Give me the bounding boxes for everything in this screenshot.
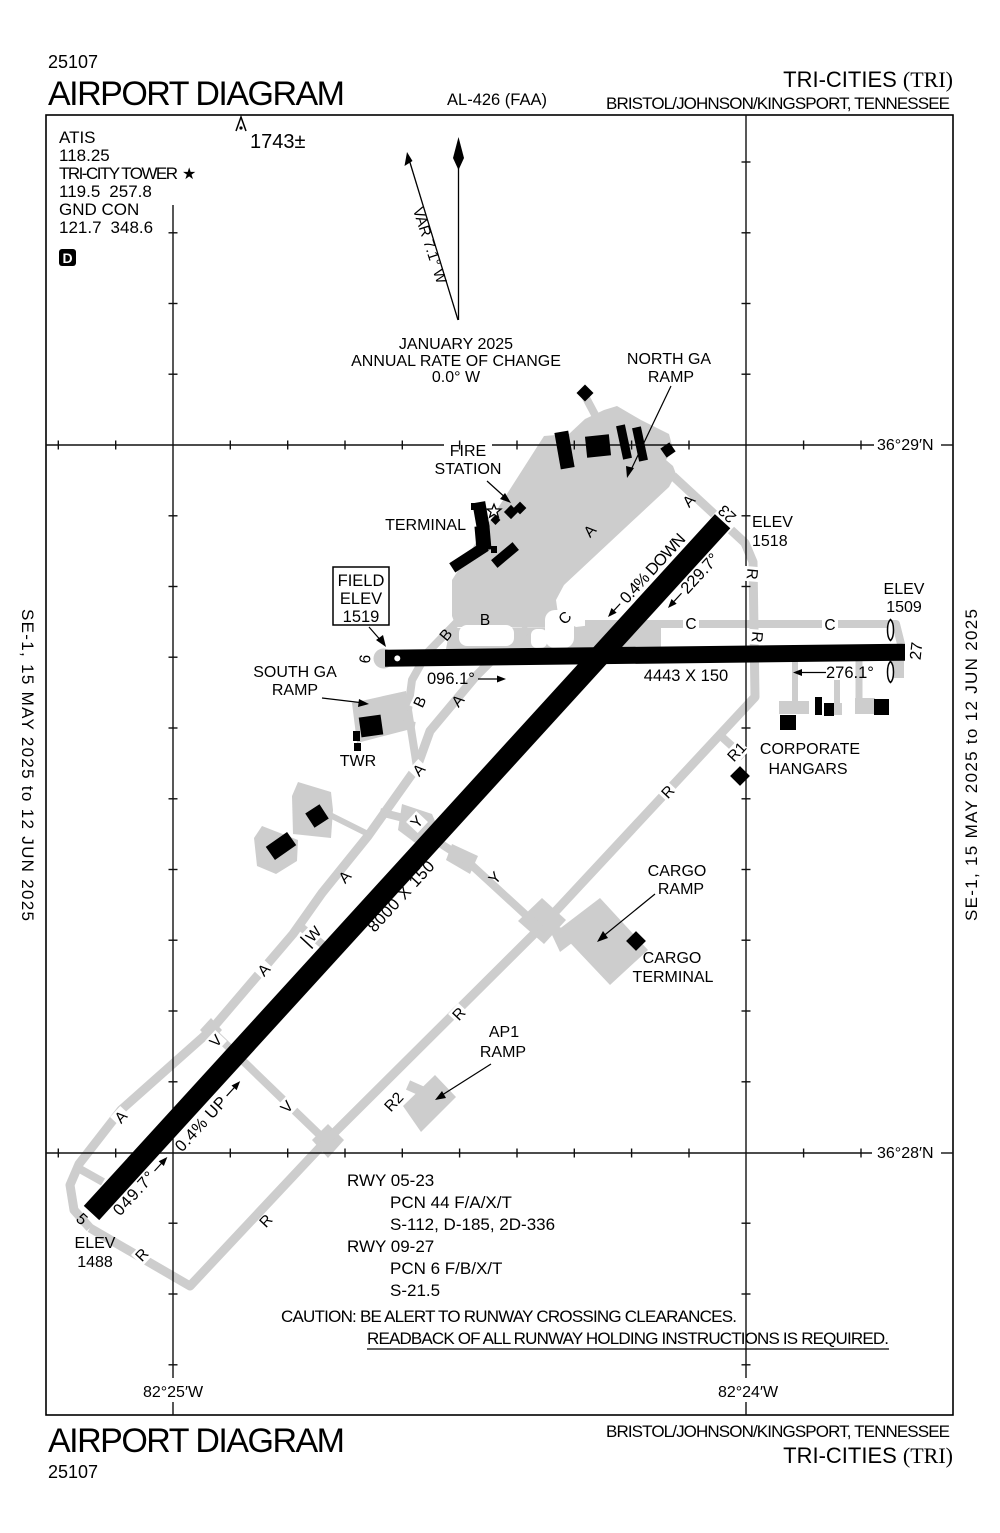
svg-text:ELEV: ELEV: [752, 514, 793, 531]
svg-text:0.0° W: 0.0° W: [432, 369, 481, 386]
svg-text:36°28′N: 36°28′N: [877, 1145, 934, 1162]
svg-text:36°29′N: 36°29′N: [877, 437, 934, 454]
svg-text:4443 X 150: 4443 X 150: [644, 667, 728, 685]
svg-text:CARGO: CARGO: [643, 950, 702, 967]
svg-text:TERMINAL: TERMINAL: [385, 517, 466, 534]
svg-text:READBACK OF ALL RUNWAY HOLDING: READBACK OF ALL RUNWAY HOLDING INSTRUCTI…: [367, 1329, 889, 1348]
svg-text:C: C: [824, 617, 835, 634]
svg-text:TERMINAL: TERMINAL: [633, 969, 714, 986]
svg-text:FIRE: FIRE: [450, 443, 486, 460]
svg-text:TWR: TWR: [340, 753, 376, 770]
svg-text:25107: 25107: [48, 1462, 98, 1482]
svg-text:SOUTH GA: SOUTH GA: [253, 664, 337, 681]
svg-text:BRISTOL/JOHNSON/KINGSPORT, TEN: BRISTOL/JOHNSON/KINGSPORT, TENNESSEE: [606, 1422, 950, 1441]
svg-text:S-21.5: S-21.5: [390, 1281, 440, 1300]
svg-text:ELEV: ELEV: [75, 1235, 116, 1252]
svg-text:RAMP: RAMP: [648, 369, 694, 386]
svg-text:GND CON: GND CON: [59, 200, 139, 219]
svg-text:NORTH GA: NORTH GA: [627, 351, 711, 368]
svg-text:D: D: [62, 250, 72, 266]
svg-text:AL-426 (FAA): AL-426 (FAA): [447, 91, 547, 109]
svg-text:RAMP: RAMP: [480, 1044, 526, 1061]
svg-text:RWY 05-23: RWY 05-23: [347, 1171, 434, 1190]
svg-text:FIELD: FIELD: [338, 572, 385, 590]
svg-text:CORPORATE: CORPORATE: [760, 741, 860, 758]
svg-text:ATIS: ATIS: [59, 128, 96, 147]
svg-text:R: R: [743, 568, 761, 581]
svg-text:JANUARY 2025: JANUARY 2025: [399, 336, 513, 353]
svg-text:CAUTION: BE ALERT TO RUNWAY CR: CAUTION: BE ALERT TO RUNWAY CROSSING CLE…: [281, 1307, 737, 1326]
svg-text:TRI-CITY TOWER: TRI-CITY TOWER: [59, 164, 178, 183]
svg-text:ELEV: ELEV: [884, 581, 925, 598]
svg-text:1519: 1519: [343, 608, 380, 626]
svg-text:276.1°: 276.1°: [826, 664, 874, 682]
svg-text:82°25′W: 82°25′W: [143, 1384, 204, 1401]
svg-text:R: R: [748, 631, 766, 644]
svg-text:1488: 1488: [77, 1254, 113, 1271]
svg-text:BRISTOL/JOHNSON/KINGSPORT, TEN: BRISTOL/JOHNSON/KINGSPORT, TENNESSEE: [606, 94, 950, 113]
svg-text:AP1: AP1: [489, 1024, 519, 1041]
svg-text:ELEV: ELEV: [340, 590, 382, 608]
svg-text:AIRPORT DIAGRAM: AIRPORT DIAGRAM: [48, 1422, 345, 1460]
svg-text:SE-1, 15 MAY 2025 to 12 JUN: SE-1, 15 MAY 2025 to 12 JUN 2025: [962, 609, 981, 921]
svg-text:1743±: 1743±: [250, 131, 305, 153]
svg-text:C: C: [685, 616, 696, 633]
svg-text:27: 27: [908, 641, 927, 661]
svg-text:ANNUAL RATE OF CHANGE: ANNUAL RATE OF CHANGE: [351, 353, 561, 370]
svg-text:TRI-CITIES (TRI): TRI-CITIES (TRI): [783, 67, 953, 92]
svg-text:HANGARS: HANGARS: [768, 761, 847, 778]
svg-text:096.1°: 096.1°: [427, 670, 475, 688]
svg-text:PCN 6 F/B/X/T: PCN 6 F/B/X/T: [390, 1259, 502, 1278]
svg-text:CARGO: CARGO: [648, 863, 707, 880]
svg-text:S-112, D-185, 2D-336: S-112, D-185, 2D-336: [390, 1215, 555, 1234]
svg-text:AIRPORT DIAGRAM: AIRPORT DIAGRAM: [48, 75, 345, 113]
svg-text:SE-1, 15 MAY 2025 to 12 JUN: SE-1, 15 MAY 2025 to 12 JUN 2025: [18, 609, 37, 921]
svg-text:STATION: STATION: [435, 461, 502, 478]
svg-text:★: ★: [182, 166, 196, 183]
svg-text:RWY 09-27: RWY 09-27: [347, 1237, 434, 1256]
svg-text:9: 9: [355, 654, 373, 664]
svg-text:TRI-CITIES (TRI): TRI-CITIES (TRI): [783, 1443, 953, 1468]
svg-text:118.25: 118.25: [59, 146, 110, 165]
svg-text:1509: 1509: [886, 599, 922, 616]
svg-text:25107: 25107: [48, 52, 98, 72]
svg-text:RAMP: RAMP: [658, 881, 704, 898]
svg-text:1518: 1518: [752, 533, 788, 550]
svg-text:B: B: [480, 612, 490, 629]
svg-text:82°24′W: 82°24′W: [718, 1384, 779, 1401]
svg-text:RAMP: RAMP: [272, 682, 318, 699]
svg-text:PCN 44 F/A/X/T: PCN 44 F/A/X/T: [390, 1193, 512, 1212]
